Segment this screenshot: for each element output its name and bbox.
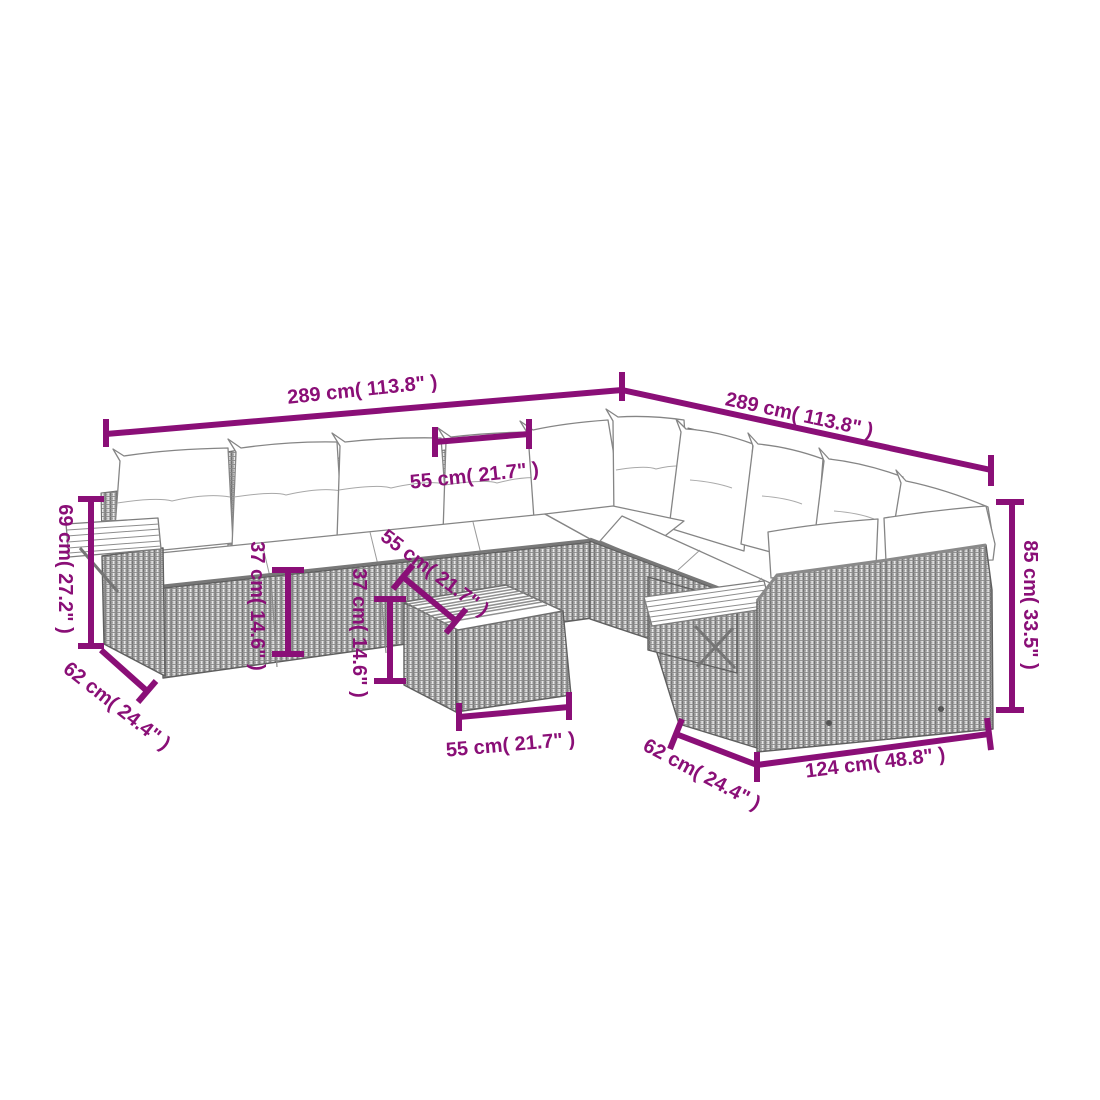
svg-text:37 cm( 14.6" ): 37 cm( 14.6" ) bbox=[246, 541, 268, 671]
svg-text:85 cm( 33.5" ): 85 cm( 33.5" ) bbox=[1019, 540, 1041, 670]
svg-text:69 cm( 27.2" ): 69 cm( 27.2" ) bbox=[54, 504, 76, 634]
svg-text:37 cm( 14.6" ): 37 cm( 14.6" ) bbox=[348, 568, 370, 698]
